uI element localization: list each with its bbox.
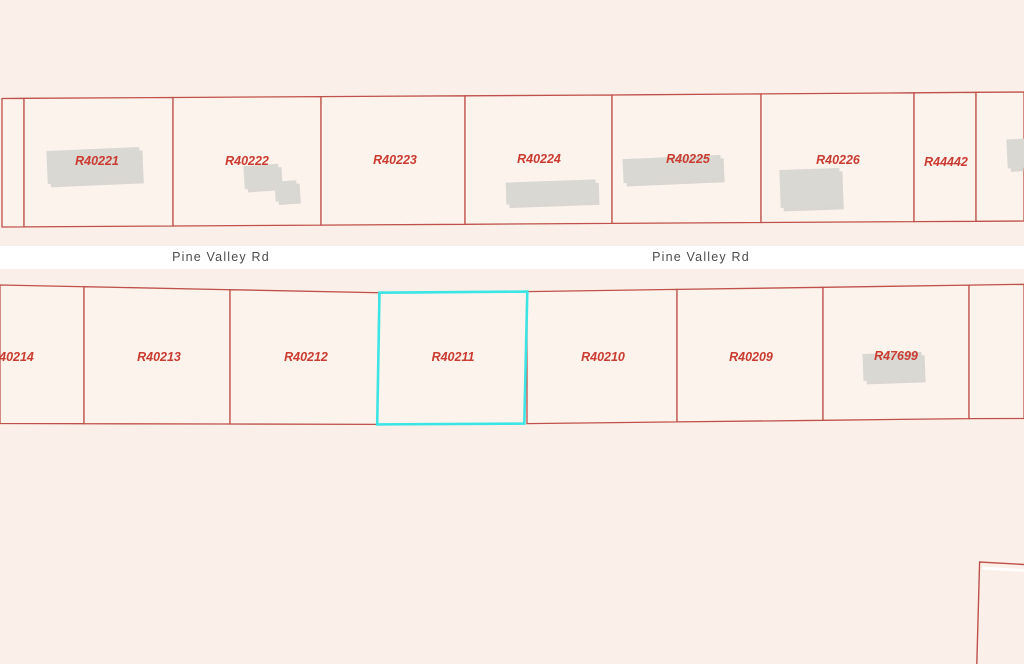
parcel-sliver-left[interactable] bbox=[2, 98, 24, 227]
parcel-R40213[interactable] bbox=[84, 287, 230, 424]
parcel-R47699[interactable] bbox=[823, 285, 969, 420]
parcel-R40214[interactable] bbox=[0, 285, 84, 424]
building-footprint-R47699 bbox=[863, 352, 926, 385]
road-pine-valley bbox=[0, 246, 1024, 269]
parcel-unlabeled-bottom-right[interactable] bbox=[969, 284, 1024, 418]
parcel-R40209[interactable] bbox=[677, 287, 823, 422]
building-footprint-R40225 bbox=[623, 155, 725, 187]
parcel-R40212[interactable] bbox=[230, 290, 379, 425]
road-edge-bottom-right bbox=[982, 568, 1024, 571]
parcel-R40223[interactable] bbox=[321, 96, 465, 225]
building-footprint-R40226 bbox=[779, 168, 843, 212]
map-canvas[interactable]: Pine Valley Rd Pine Valley Rd R40221 R40… bbox=[0, 0, 1024, 664]
parcel-R40211[interactable] bbox=[377, 292, 527, 425]
building-footprint-R40224 bbox=[506, 179, 600, 208]
parcel-R44442[interactable] bbox=[914, 92, 976, 221]
parcel-R40210[interactable] bbox=[527, 289, 677, 423]
parcel-map-layer bbox=[0, 0, 1024, 664]
parcel-corner-bottom-right bbox=[977, 562, 1024, 664]
building-footprint-top-right-edge bbox=[1006, 138, 1024, 172]
building-footprint-R40222-b bbox=[274, 180, 301, 205]
parcel-R40222[interactable] bbox=[173, 97, 321, 226]
building-footprint-R40221 bbox=[46, 147, 144, 188]
